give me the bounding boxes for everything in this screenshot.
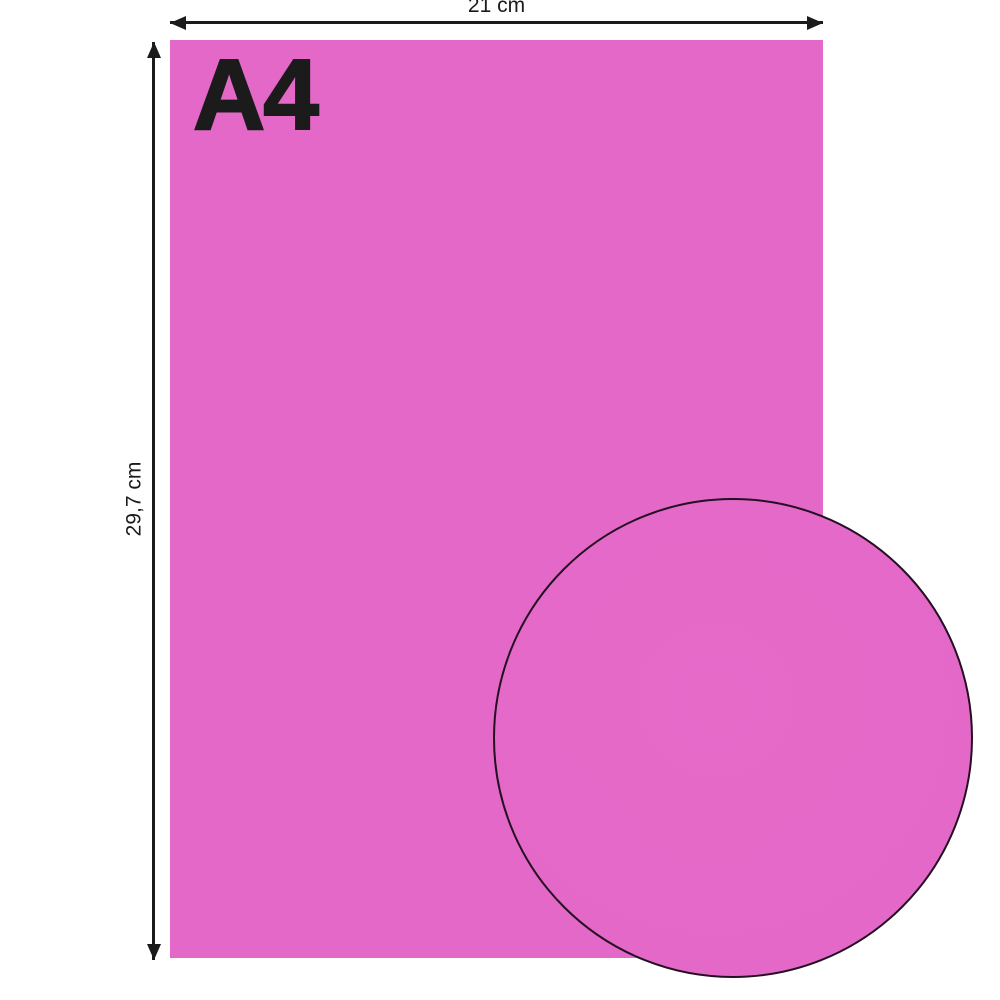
height-dimension-label: 29,7 cm <box>124 462 145 537</box>
width-dimension-arrow <box>170 21 823 24</box>
texture-magnifier-circle <box>493 498 973 978</box>
paper-format-label: A4 <box>193 45 317 145</box>
width-dimension-label: 21 cm <box>170 0 823 16</box>
product-image: 21 cm 29,7 cm A4 <box>0 0 1000 1000</box>
arrowhead-down-icon <box>147 944 161 960</box>
arrowhead-left-icon <box>170 16 186 30</box>
height-dimension-arrow <box>152 42 155 960</box>
arrowhead-right-icon <box>807 16 823 30</box>
arrowhead-up-icon <box>147 42 161 58</box>
